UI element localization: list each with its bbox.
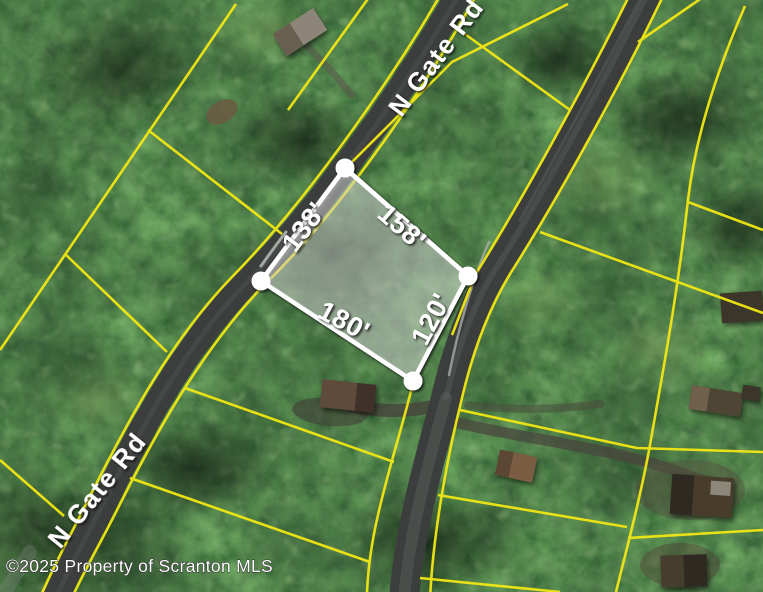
house [720, 291, 763, 324]
house [741, 385, 761, 402]
mls-aerial-map[interactable]: N Gate Rd N Gate Rd 138' 158' 180' 120' … [0, 0, 763, 592]
house [670, 474, 735, 518]
house [660, 554, 707, 588]
lot-corner-marker [404, 372, 423, 391]
lot-corner-marker [459, 267, 478, 286]
lot-corner-marker [252, 272, 271, 291]
aerial-map-canvas: N Gate Rd N Gate Rd 138' 158' 180' 120' … [0, 0, 763, 592]
copyright-notice: ©2025 Property of Scranton MLS [6, 556, 273, 576]
house [320, 379, 377, 412]
lot-corner-marker [336, 159, 355, 178]
